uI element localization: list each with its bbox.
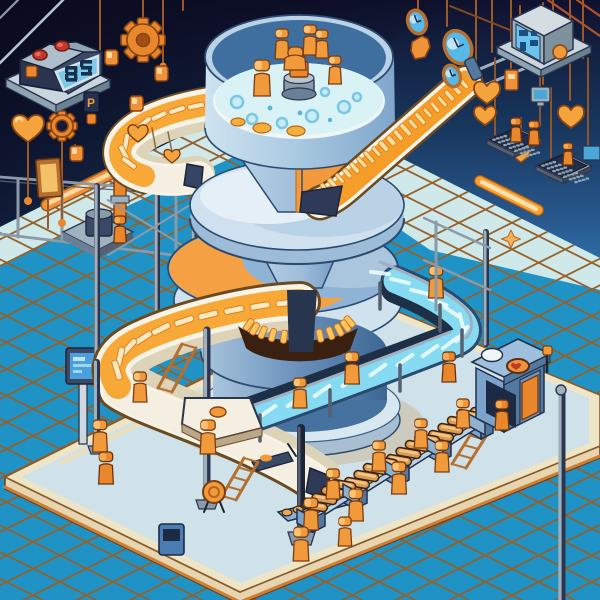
svg-text:P: P (87, 96, 95, 110)
